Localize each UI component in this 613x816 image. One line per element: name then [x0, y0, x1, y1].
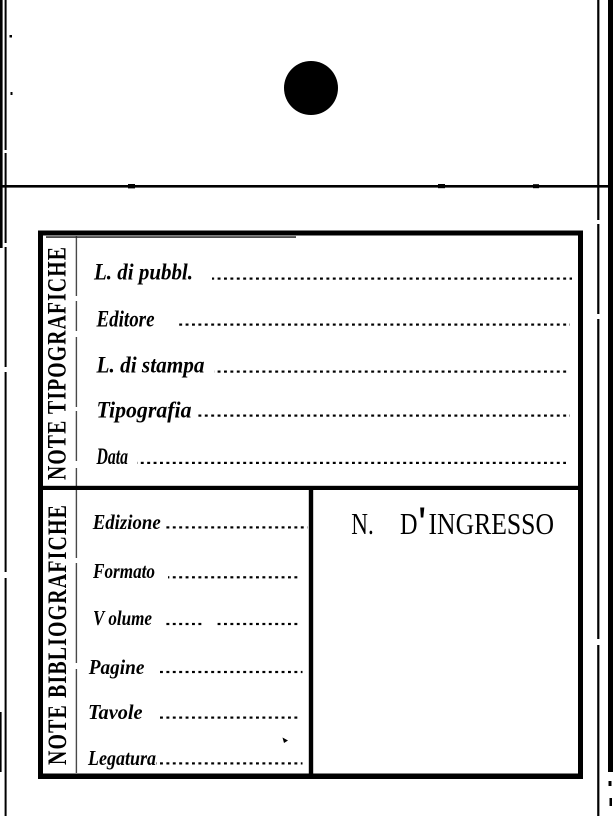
svg-text:Legatura: Legatura — [87, 746, 156, 770]
svg-text:NOTE BIBLIOGRAFICHE: NOTE BIBLIOGRAFICHE — [43, 504, 72, 765]
svg-text:Editore: Editore — [96, 307, 155, 333]
svg-text:D: D — [400, 506, 418, 541]
svg-text:Tavole: Tavole — [88, 700, 143, 724]
svg-text:N.: N. — [351, 506, 374, 541]
svg-text:INGRESSO: INGRESSO — [429, 506, 555, 541]
svg-text:L. di stampa: L. di stampa — [96, 353, 205, 379]
svg-text:Formato: Formato — [92, 559, 155, 583]
svg-text:Pagine: Pagine — [88, 655, 145, 679]
svg-text:Data: Data — [96, 444, 128, 470]
svg-text:V olume: V olume — [93, 606, 152, 630]
svg-text:L. di pubbl.: L. di pubbl. — [93, 260, 193, 286]
svg-text:NOTE TIPOGRAFICHE: NOTE TIPOGRAFICHE — [42, 246, 71, 480]
svg-text:Edizione: Edizione — [92, 510, 161, 534]
svg-text:Tipografia: Tipografia — [97, 398, 192, 424]
